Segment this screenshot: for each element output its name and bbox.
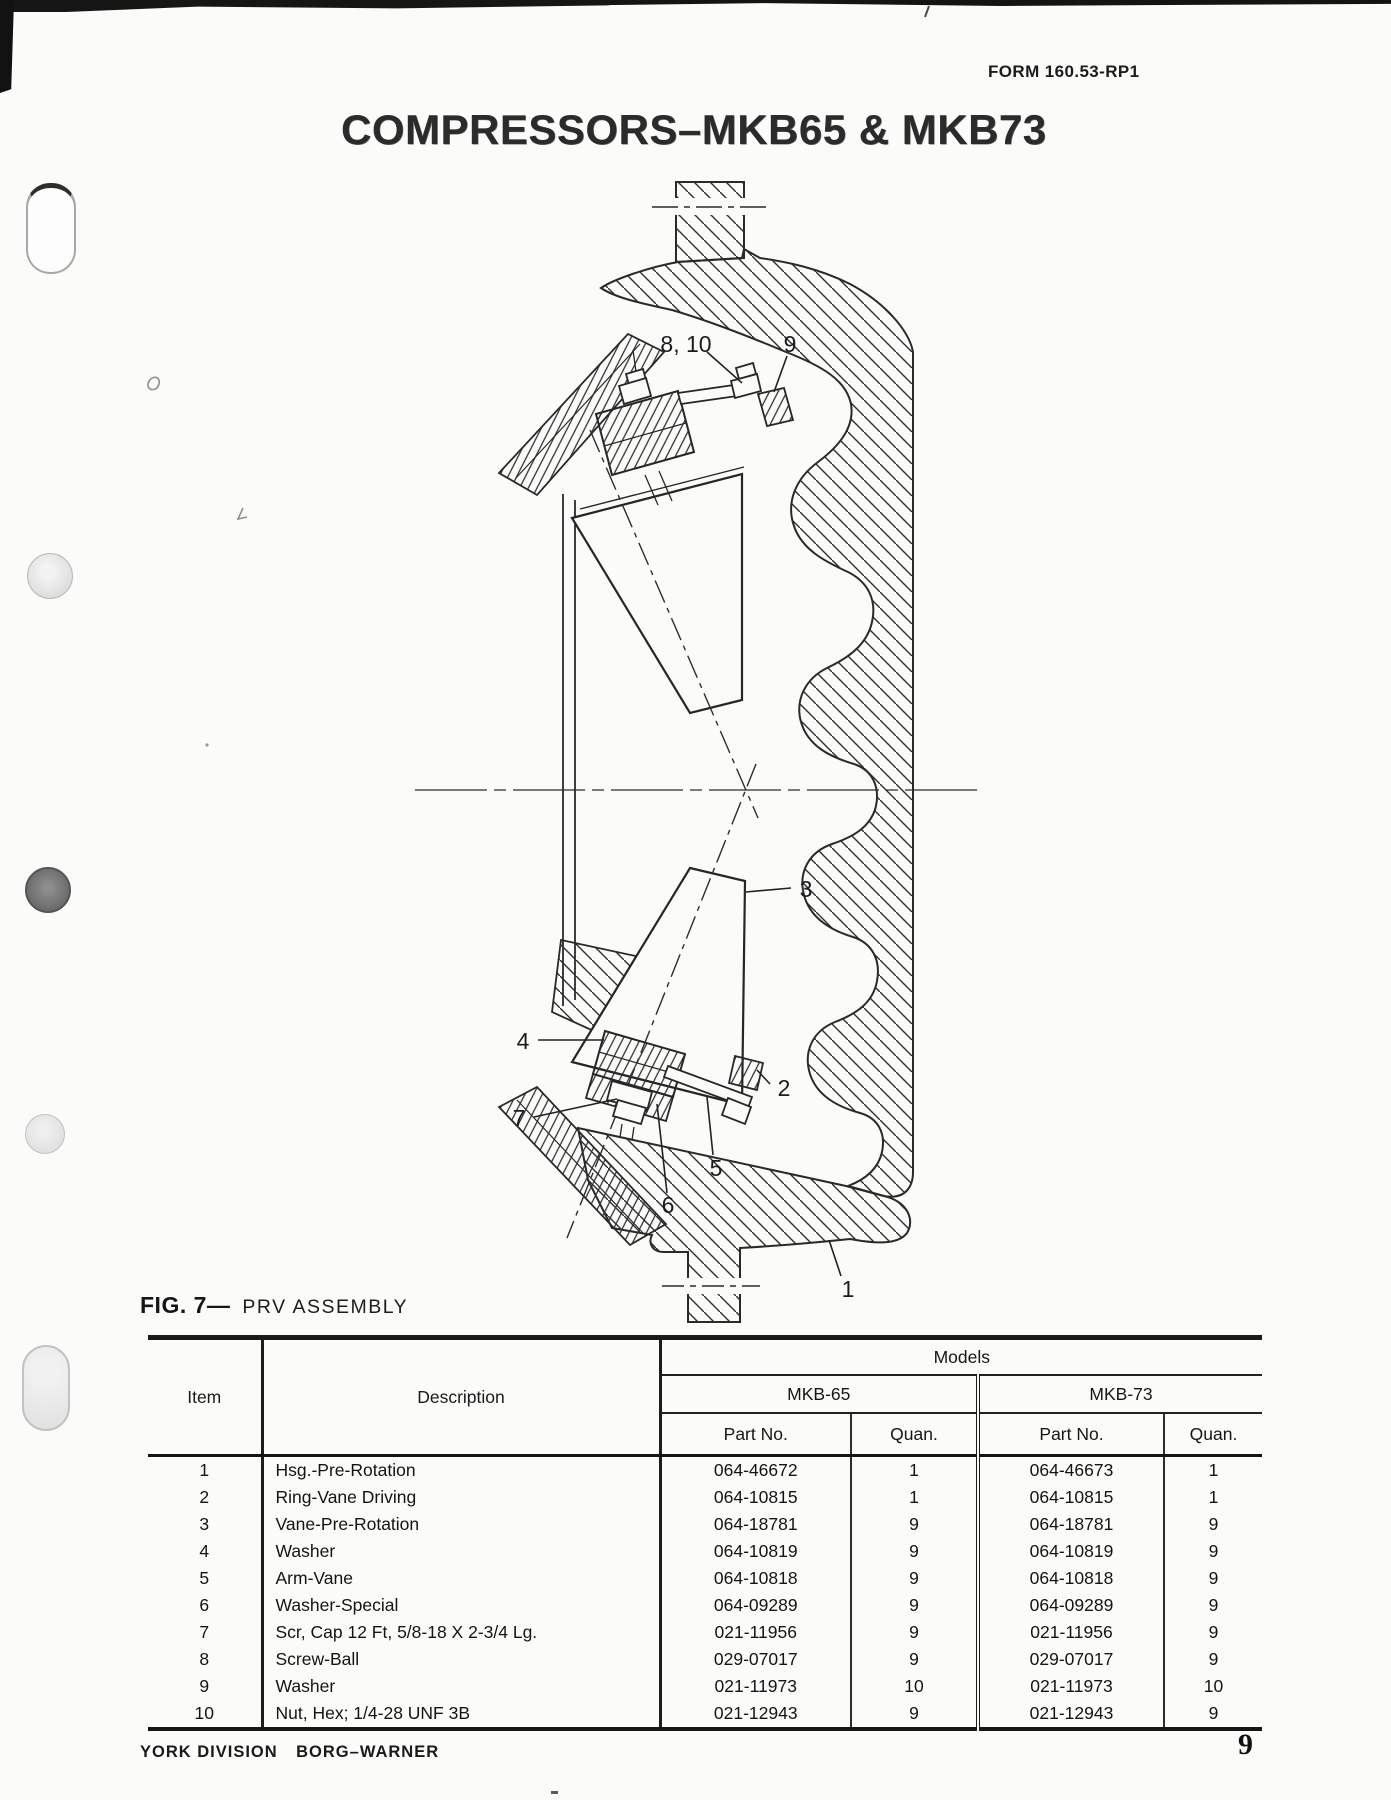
col-header-part-no-mkb65: Part No. (660, 1413, 851, 1456)
col-header-quan-mkb65: Quan. (851, 1413, 978, 1456)
table-row: 3 Vane-Pre-Rotation 064-18781 9 064-1878… (148, 1511, 1262, 1538)
cell-item: 1 (148, 1456, 262, 1485)
cell-description: Scr, Cap 12 Ft, 5/8-18 X 2-3/4 Lg. (262, 1619, 660, 1646)
col-header-item: Item (148, 1338, 262, 1456)
cell-description: Washer (262, 1538, 660, 1565)
cell-item: 4 (148, 1538, 262, 1565)
cell-mkb65-quan: 9 (851, 1592, 978, 1619)
table-row: 9 Washer 021-11973 10 021-11973 10 (148, 1673, 1262, 1700)
cell-mkb65-part-no: 064-10818 (660, 1565, 851, 1592)
cell-mkb65-quan: 10 (851, 1673, 978, 1700)
table-row: 10 Nut, Hex; 1/4-28 UNF 3B 021-12943 9 0… (148, 1700, 1262, 1729)
cell-mkb65-part-no: 064-46672 (660, 1456, 851, 1485)
figure-caption: FIG. 7—PRV ASSEMBLY (140, 1292, 408, 1319)
col-header-mkb73: MKB-73 (978, 1375, 1262, 1413)
page-number: 9 (1238, 1728, 1253, 1762)
cell-mkb65-quan: 9 (851, 1700, 978, 1729)
callout-5: 5 (710, 1155, 723, 1181)
cell-description: Screw-Ball (262, 1646, 660, 1673)
callout-2: 2 (778, 1075, 791, 1101)
callout-7: 7 (513, 1105, 526, 1131)
vane-arm-upper (678, 385, 737, 404)
cell-mkb73-quan: 1 (1164, 1456, 1262, 1485)
cell-mkb65-quan: 1 (851, 1484, 978, 1511)
table-row: 2 Ring-Vane Driving 064-10815 1 064-1081… (148, 1484, 1262, 1511)
cell-description: Arm-Vane (262, 1565, 660, 1592)
screw-ball (758, 388, 793, 426)
figure-title: PRV ASSEMBLY (242, 1296, 408, 1318)
cell-mkb65-part-no: 021-11973 (660, 1673, 851, 1700)
callout-9: 9 (784, 331, 797, 357)
cell-item: 2 (148, 1484, 262, 1511)
cell-mkb73-part-no: 021-11956 (978, 1619, 1164, 1646)
cell-mkb65-part-no: 064-10815 (660, 1484, 851, 1511)
cell-mkb73-part-no: 021-12943 (978, 1700, 1164, 1729)
cell-mkb73-quan: 9 (1164, 1565, 1262, 1592)
cell-description: Vane-Pre-Rotation (262, 1511, 660, 1538)
cell-mkb65-quan: 9 (851, 1646, 978, 1673)
cell-description: Ring-Vane Driving (262, 1484, 660, 1511)
upper-actuator-assembly (596, 350, 793, 505)
cell-mkb73-quan: 1 (1164, 1484, 1262, 1511)
cell-item: 5 (148, 1565, 262, 1592)
cell-mkb73-part-no: 029-07017 (978, 1646, 1164, 1673)
cell-mkb73-quan: 9 (1164, 1592, 1262, 1619)
cell-description: Washer-Special (262, 1592, 660, 1619)
col-header-quan-mkb73: Quan. (1164, 1413, 1262, 1456)
footer-company: BORG–WARNER (296, 1743, 439, 1761)
cell-description: Washer (262, 1673, 660, 1700)
cell-item: 10 (148, 1700, 262, 1729)
callout-4: 4 (517, 1028, 530, 1054)
parts-table-body: 1 Hsg.-Pre-Rotation 064-46672 1 064-4667… (148, 1456, 1262, 1730)
top-flange-stub (676, 182, 744, 262)
callout-3: 3 (800, 876, 813, 902)
cell-description: Nut, Hex; 1/4-28 UNF 3B (262, 1700, 660, 1729)
cell-mkb65-quan: 9 (851, 1565, 978, 1592)
vane-upper (572, 474, 742, 713)
cell-mkb65-part-no: 021-12943 (660, 1700, 851, 1729)
cell-item: 9 (148, 1673, 262, 1700)
cell-mkb73-part-no: 021-11973 (978, 1673, 1164, 1700)
cell-mkb65-part-no: 064-10819 (660, 1538, 851, 1565)
cell-mkb73-part-no: 064-10818 (978, 1565, 1164, 1592)
table-row: 1 Hsg.-Pre-Rotation 064-46672 1 064-4667… (148, 1456, 1262, 1485)
vane-driving-ring-item2 (729, 1056, 763, 1090)
cell-mkb73-part-no: 064-46673 (978, 1456, 1164, 1485)
page-footer: YORK DIVISION BORG–WARNER (140, 1743, 439, 1762)
col-header-description: Description (262, 1338, 660, 1456)
cell-mkb65-quan: 1 (851, 1456, 978, 1485)
cell-item: 8 (148, 1646, 262, 1673)
cell-mkb65-part-no: 064-18781 (660, 1511, 851, 1538)
cell-mkb65-part-no: 029-07017 (660, 1646, 851, 1673)
cell-mkb73-quan: 9 (1164, 1700, 1262, 1729)
table-row: 6 Washer-Special 064-09289 9 064-09289 9 (148, 1592, 1262, 1619)
cell-mkb73-part-no: 064-09289 (978, 1592, 1164, 1619)
table-row: 5 Arm-Vane 064-10818 9 064-10818 9 (148, 1565, 1262, 1592)
cell-description: Hsg.-Pre-Rotation (262, 1456, 660, 1485)
callout-6: 6 (662, 1192, 675, 1218)
figure-label: FIG. 7— (140, 1292, 230, 1318)
cell-mkb65-quan: 9 (851, 1511, 978, 1538)
cell-mkb65-quan: 9 (851, 1619, 978, 1646)
cell-mkb65-part-no: 021-11956 (660, 1619, 851, 1646)
cell-mkb73-part-no: 064-10815 (978, 1484, 1164, 1511)
table-row: 8 Screw-Ball 029-07017 9 029-07017 9 (148, 1646, 1262, 1673)
callout-1: 1 (842, 1276, 855, 1302)
col-header-mkb65: MKB-65 (660, 1375, 978, 1413)
cell-item: 7 (148, 1619, 262, 1646)
parts-table: Item Description Models MKB-65 MKB-73 Pa… (148, 1335, 1262, 1731)
cell-mkb73-quan: 9 (1164, 1619, 1262, 1646)
cell-mkb73-quan: 9 (1164, 1646, 1262, 1673)
cell-item: 3 (148, 1511, 262, 1538)
cell-mkb73-part-no: 064-10819 (978, 1538, 1164, 1565)
table-row: 4 Washer 064-10819 9 064-10819 9 (148, 1538, 1262, 1565)
cell-mkb73-quan: 9 (1164, 1511, 1262, 1538)
footer-division: YORK DIVISION (140, 1743, 278, 1761)
cell-mkb73-quan: 10 (1164, 1673, 1262, 1700)
cell-mkb65-part-no: 064-09289 (660, 1592, 851, 1619)
callout-8-10: 8, 10 (660, 331, 711, 357)
cell-mkb65-quan: 9 (851, 1538, 978, 1565)
cell-item: 6 (148, 1592, 262, 1619)
col-header-part-no-mkb73: Part No. (978, 1413, 1164, 1456)
col-header-models: Models (660, 1338, 1262, 1376)
cell-mkb73-quan: 9 (1164, 1538, 1262, 1565)
table-row: 7 Scr, Cap 12 Ft, 5/8-18 X 2-3/4 Lg. 021… (148, 1619, 1262, 1646)
cell-mkb73-part-no: 064-18781 (978, 1511, 1164, 1538)
